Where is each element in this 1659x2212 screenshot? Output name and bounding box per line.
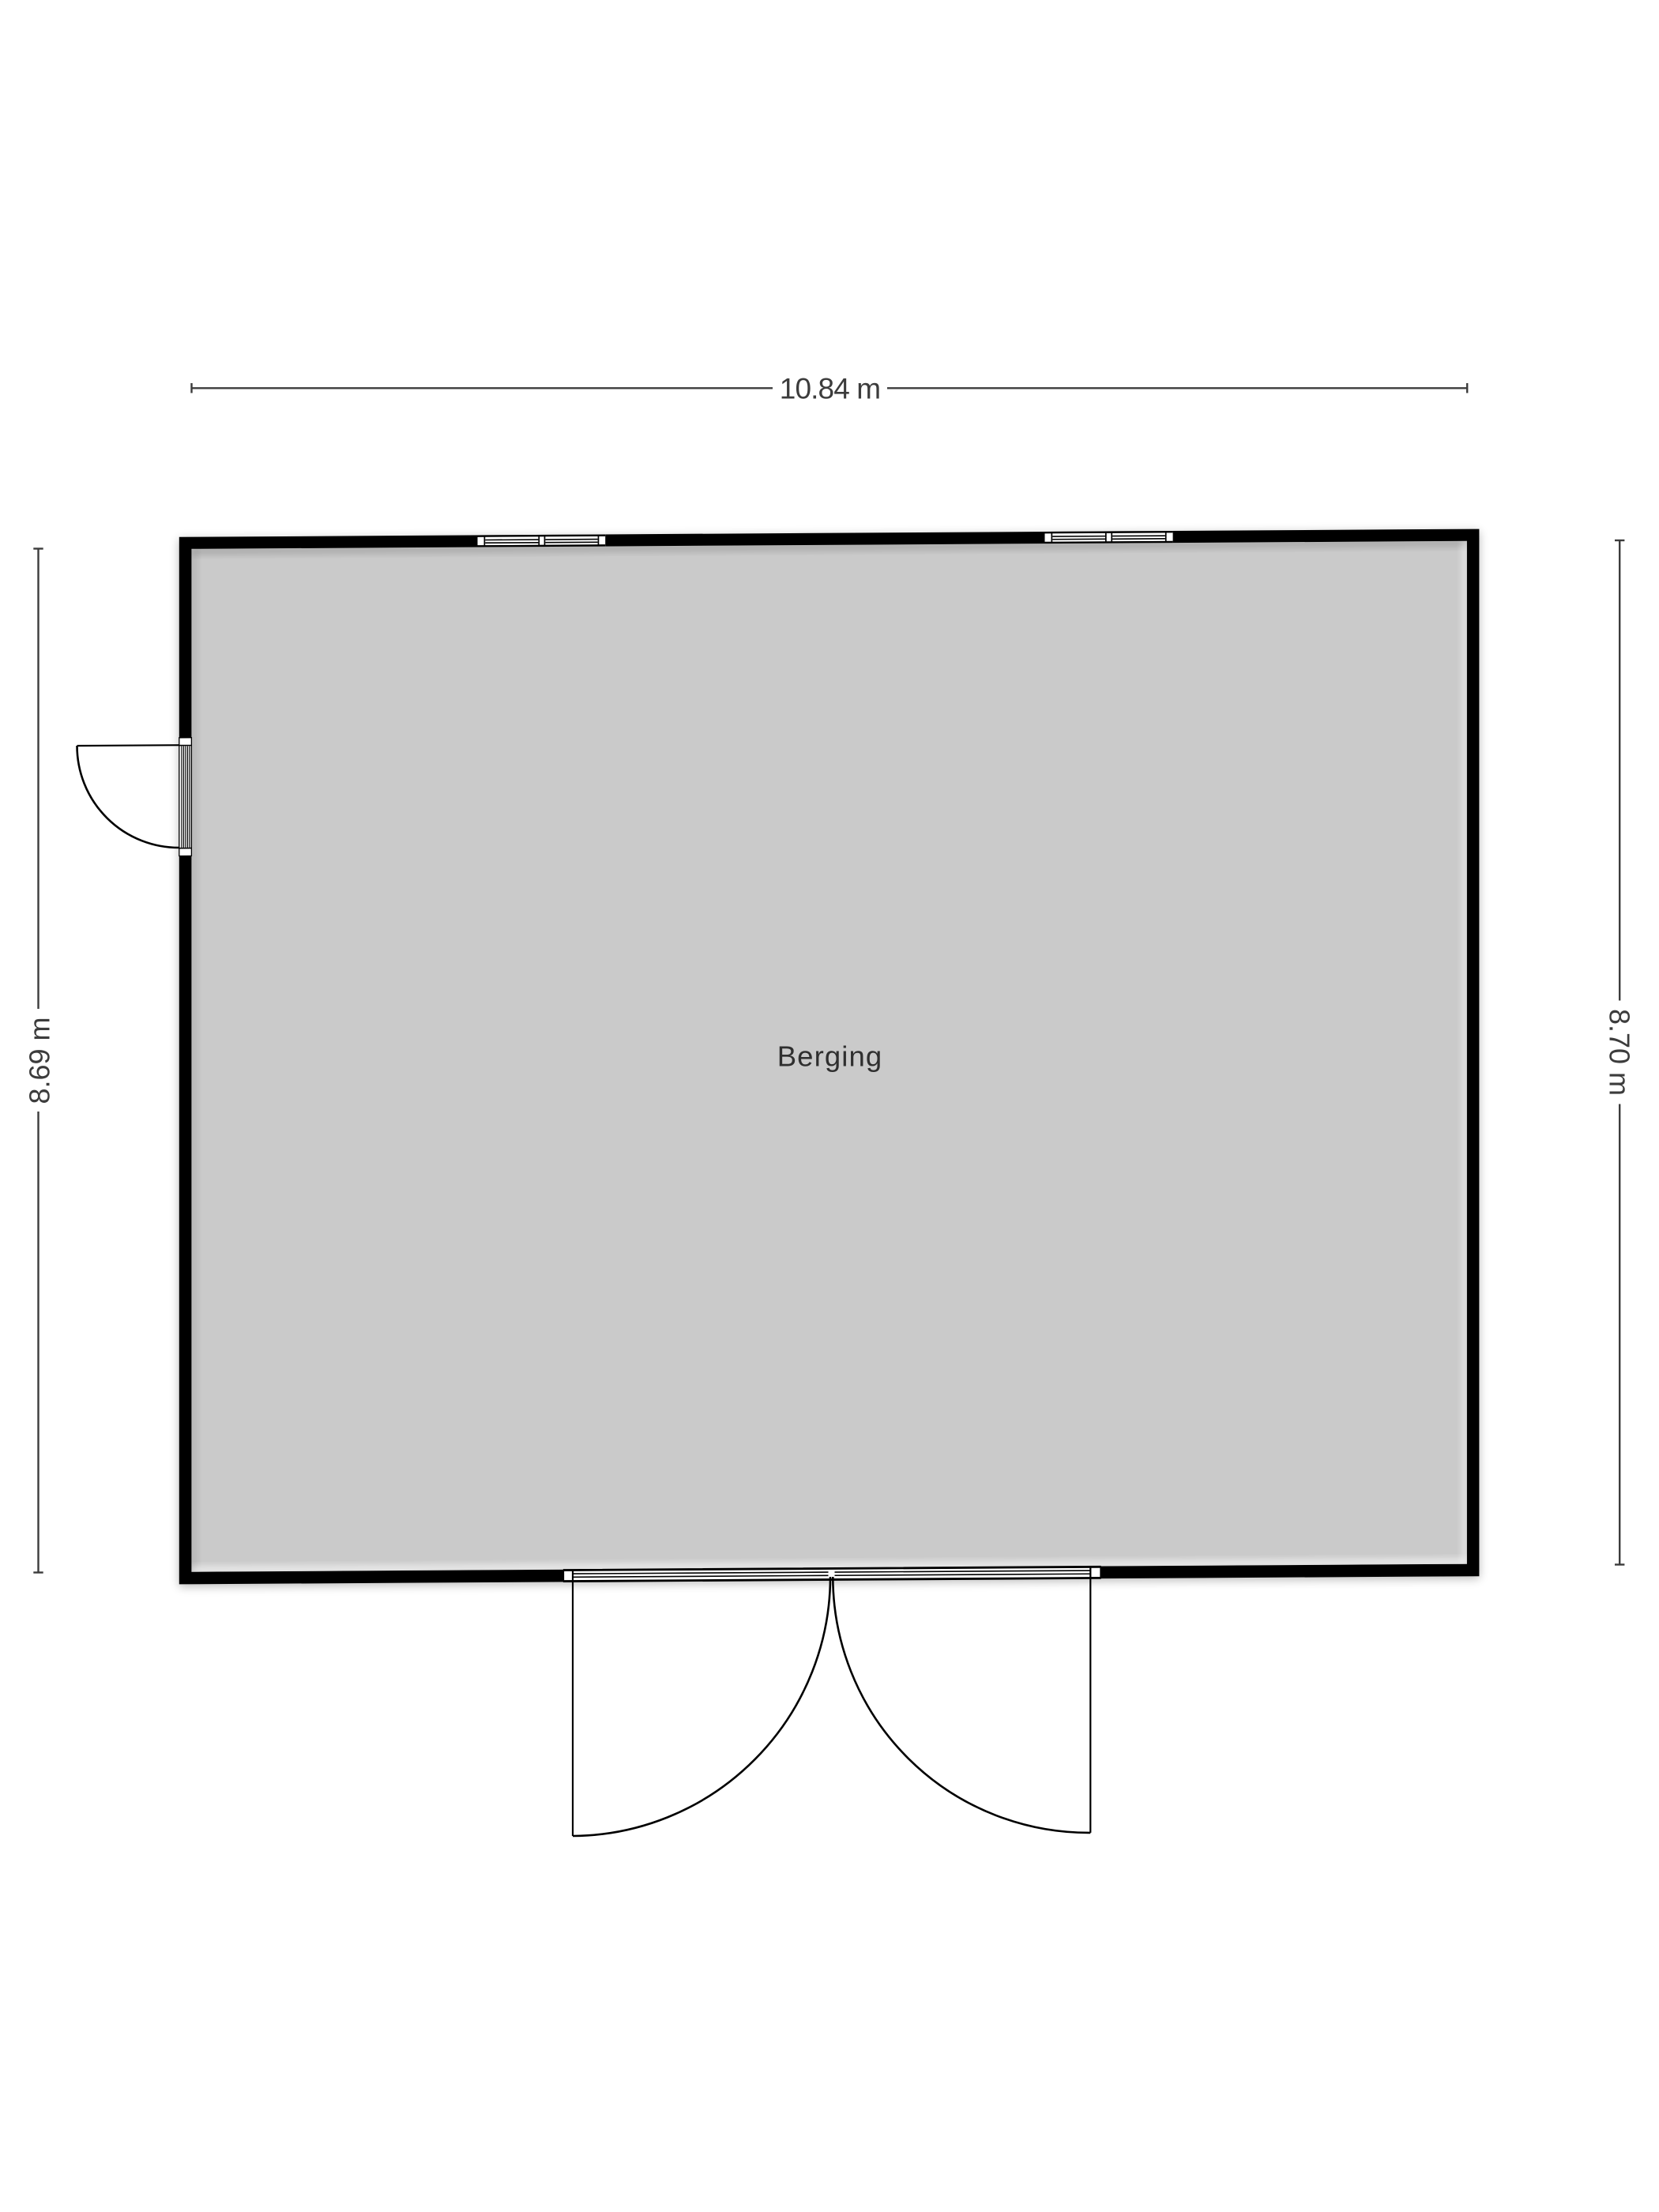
svg-text:Berging: Berging xyxy=(777,1040,883,1073)
svg-text:10.84 m: 10.84 m xyxy=(780,373,880,405)
svg-text:8.70 m: 8.70 m xyxy=(1604,1009,1636,1096)
svg-text:8.69 m: 8.69 m xyxy=(24,1017,56,1104)
